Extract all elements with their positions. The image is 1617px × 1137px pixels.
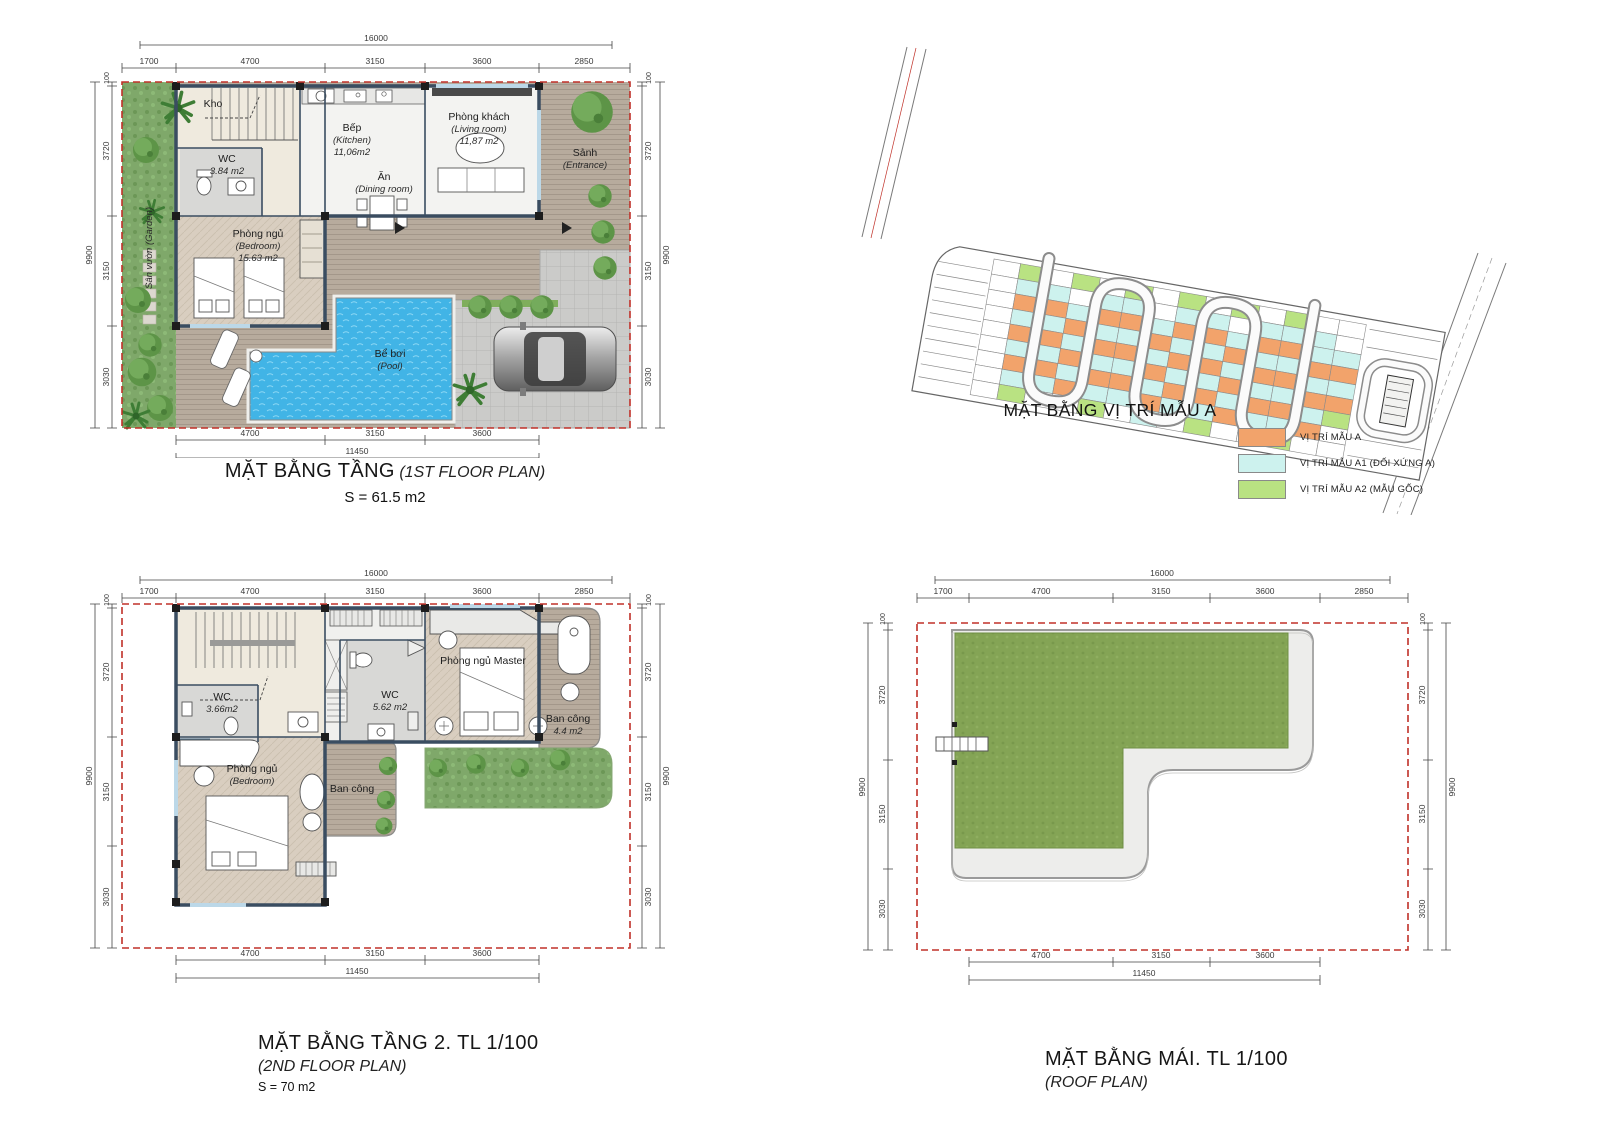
floor2-title-block: MẶT BẰNG TẦNG 2. TL 1/100 (2ND FLOOR PLA…	[258, 1032, 678, 1094]
svg-text:100: 100	[646, 72, 653, 84]
floor2-planter	[425, 748, 612, 808]
svg-text:3030: 3030	[877, 899, 887, 918]
svg-text:4700: 4700	[241, 586, 260, 596]
svg-text:3150: 3150	[643, 261, 653, 280]
site-title: MẶT BẰNG VỊ TRÍ MẪU A	[900, 400, 1320, 421]
svg-text:4.4 m2: 4.4 m2	[553, 726, 583, 737]
svg-text:3030: 3030	[643, 367, 653, 386]
legend-row-a2: VỊ TRÍ MẪU A2 (MẪU GỐC)	[1238, 480, 1568, 499]
svg-text:4700: 4700	[1032, 950, 1051, 960]
legend-swatch-a2	[1238, 480, 1286, 499]
legend-label-a1: VỊ TRÍ MẪU A1 (ĐỐI XỨNG A)	[1300, 458, 1435, 469]
svg-text:3720: 3720	[877, 685, 887, 704]
svg-text:3150: 3150	[366, 428, 385, 438]
svg-text:11450: 11450	[1132, 968, 1155, 978]
svg-text:3150: 3150	[366, 948, 385, 958]
svg-text:WC: WC	[381, 689, 399, 701]
roof-subtitle: (ROOF PLAN)	[1045, 1074, 1405, 1092]
svg-text:(Bedroom): (Bedroom)	[230, 776, 275, 787]
svg-text:1700: 1700	[934, 586, 953, 596]
svg-text:2850: 2850	[575, 586, 594, 596]
svg-text:Phòng ngủ: Phòng ngủ	[227, 763, 278, 775]
svg-text:3720: 3720	[643, 141, 653, 160]
drawing-sheet: 16000 1700 4700 3150 3600 2850 100 3720 …	[0, 0, 1617, 1137]
roof-title: MẶT BẰNG MÁI. TL 1/100	[1045, 1048, 1288, 1070]
svg-text:2850: 2850	[1355, 586, 1374, 596]
svg-text:9900: 9900	[85, 245, 94, 264]
svg-text:9900: 9900	[857, 777, 867, 796]
svg-text:1700: 1700	[140, 586, 159, 596]
svg-text:3600: 3600	[473, 586, 492, 596]
svg-text:5.62 m2: 5.62 m2	[373, 702, 408, 713]
svg-text:3030: 3030	[1417, 899, 1427, 918]
svg-text:16000: 16000	[364, 568, 388, 578]
svg-text:3600: 3600	[1256, 950, 1275, 960]
site-left-road	[862, 47, 926, 239]
svg-text:4700: 4700	[241, 428, 260, 438]
svg-text:9900: 9900	[85, 766, 94, 785]
legend-label-a2: VỊ TRÍ MẪU A2 (MẪU GỐC)	[1300, 484, 1423, 495]
svg-text:3150: 3150	[1152, 586, 1171, 596]
svg-text:(Dining room): (Dining room)	[355, 184, 413, 195]
svg-text:Bếp: Bếp	[343, 122, 362, 134]
svg-text:(Kitchen): (Kitchen)	[333, 135, 371, 146]
roof-title-block: MẶT BẰNG MÁI. TL 1/100 (ROOF PLAN)	[1045, 1048, 1405, 1092]
svg-text:100: 100	[880, 613, 887, 625]
svg-text:Phòng ngủ Master: Phòng ngủ Master	[440, 655, 526, 667]
svg-text:3150: 3150	[101, 261, 111, 280]
svg-text:Kho: Kho	[204, 98, 223, 110]
svg-text:Sảnh: Sảnh	[573, 147, 598, 159]
svg-text:3030: 3030	[101, 367, 111, 386]
svg-text:Bể bơi: Bể bơi	[375, 348, 406, 360]
svg-text:4700: 4700	[1032, 586, 1051, 596]
car	[494, 322, 616, 396]
floor1-title: MẶT BẰNG TẦNG (1ST FLOOR PLAN)	[85, 460, 685, 483]
svg-text:9900: 9900	[1447, 777, 1457, 796]
site-legend: VỊ TRÍ MẪU A VỊ TRÍ MẪU A1 (ĐỐI XỨNG A) …	[1238, 428, 1568, 506]
svg-text:3720: 3720	[101, 662, 111, 681]
svg-text:100: 100	[104, 72, 111, 84]
floor2-plan-drawing: 16000 1700 4700 3150 3600 2850 100 3720 …	[85, 565, 685, 1010]
svg-text:WC: WC	[213, 691, 231, 703]
svg-text:11450: 11450	[345, 966, 368, 976]
kitchen-counter	[302, 88, 425, 104]
svg-text:3150: 3150	[101, 782, 111, 801]
svg-text:3.66m2: 3.66m2	[206, 704, 238, 715]
legend-row-a: VỊ TRÍ MẪU A	[1238, 428, 1568, 447]
svg-text:3150: 3150	[366, 586, 385, 596]
floor1-title-block: MẶT BẰNG TẦNG (1ST FLOOR PLAN) S = 61.5 …	[85, 460, 685, 506]
svg-text:3720: 3720	[101, 141, 111, 160]
svg-text:100: 100	[1420, 613, 1427, 625]
svg-text:3150: 3150	[877, 804, 887, 823]
svg-text:(Pool): (Pool)	[377, 361, 402, 372]
svg-text:100: 100	[104, 594, 111, 606]
svg-text:Phòng khách: Phòng khách	[448, 111, 509, 123]
svg-text:3150: 3150	[366, 56, 385, 66]
legend-swatch-a	[1238, 428, 1286, 447]
svg-text:3600: 3600	[473, 948, 492, 958]
svg-text:(Bedroom): (Bedroom)	[236, 241, 281, 252]
svg-text:3030: 3030	[643, 887, 653, 906]
svg-text:3600: 3600	[473, 56, 492, 66]
svg-text:3030: 3030	[101, 887, 111, 906]
floor1-area: S = 61.5 m2	[85, 489, 685, 506]
svg-text:(Entrance): (Entrance)	[563, 160, 607, 171]
svg-text:3150: 3150	[1152, 950, 1171, 960]
svg-text:2850: 2850	[575, 56, 594, 66]
svg-text:100: 100	[646, 594, 653, 606]
svg-text:3150: 3150	[643, 782, 653, 801]
floor2-title: MẶT BẰNG TẦNG 2. TL 1/100	[258, 1032, 538, 1054]
svg-text:3720: 3720	[643, 662, 653, 681]
svg-text:Phòng ngủ: Phòng ngủ	[233, 228, 284, 240]
svg-text:3600: 3600	[473, 428, 492, 438]
svg-text:9900: 9900	[661, 766, 671, 785]
legend-swatch-a1	[1238, 454, 1286, 473]
roof-plan-drawing: 16000 1700 4700 3150 3600 2850 100 3720 …	[855, 565, 1480, 1010]
svg-text:Ban công: Ban công	[330, 783, 375, 795]
svg-text:1700: 1700	[140, 56, 159, 66]
svg-text:Ban công: Ban công	[546, 713, 591, 725]
svg-text:3.84 m2: 3.84 m2	[210, 166, 245, 177]
legend-label-a: VỊ TRÍ MẪU A	[1300, 432, 1361, 443]
svg-text:WC: WC	[218, 153, 236, 165]
svg-text:(Living room): (Living room)	[451, 124, 506, 135]
floor2-subtitle: (2ND FLOOR PLAN)	[258, 1058, 678, 1076]
svg-text:3600: 3600	[1256, 586, 1275, 596]
svg-text:16000: 16000	[364, 33, 388, 43]
svg-text:11,06m2: 11,06m2	[334, 147, 371, 158]
svg-text:4700: 4700	[241, 948, 260, 958]
svg-text:Sân vườn (Garden): Sân vườn (Garden)	[144, 207, 155, 289]
svg-text:15.63 m2: 15.63 m2	[238, 253, 278, 264]
svg-text:16000: 16000	[1150, 568, 1174, 578]
svg-text:3150: 3150	[1417, 804, 1427, 823]
svg-text:3720: 3720	[1417, 685, 1427, 704]
svg-text:4700: 4700	[241, 56, 260, 66]
svg-text:11,87 m2: 11,87 m2	[460, 136, 500, 147]
legend-row-a1: VỊ TRÍ MẪU A1 (ĐỐI XỨNG A)	[1238, 454, 1568, 473]
floor1-plan-drawing: 16000 1700 4700 3150 3600 2850 100 3720 …	[85, 33, 685, 458]
svg-text:9900: 9900	[661, 245, 671, 264]
svg-text:Ăn: Ăn	[378, 170, 391, 183]
floor2-area: S = 70 m2	[258, 1080, 678, 1094]
svg-text:11450: 11450	[345, 446, 368, 456]
roof-green-area	[955, 633, 1288, 848]
